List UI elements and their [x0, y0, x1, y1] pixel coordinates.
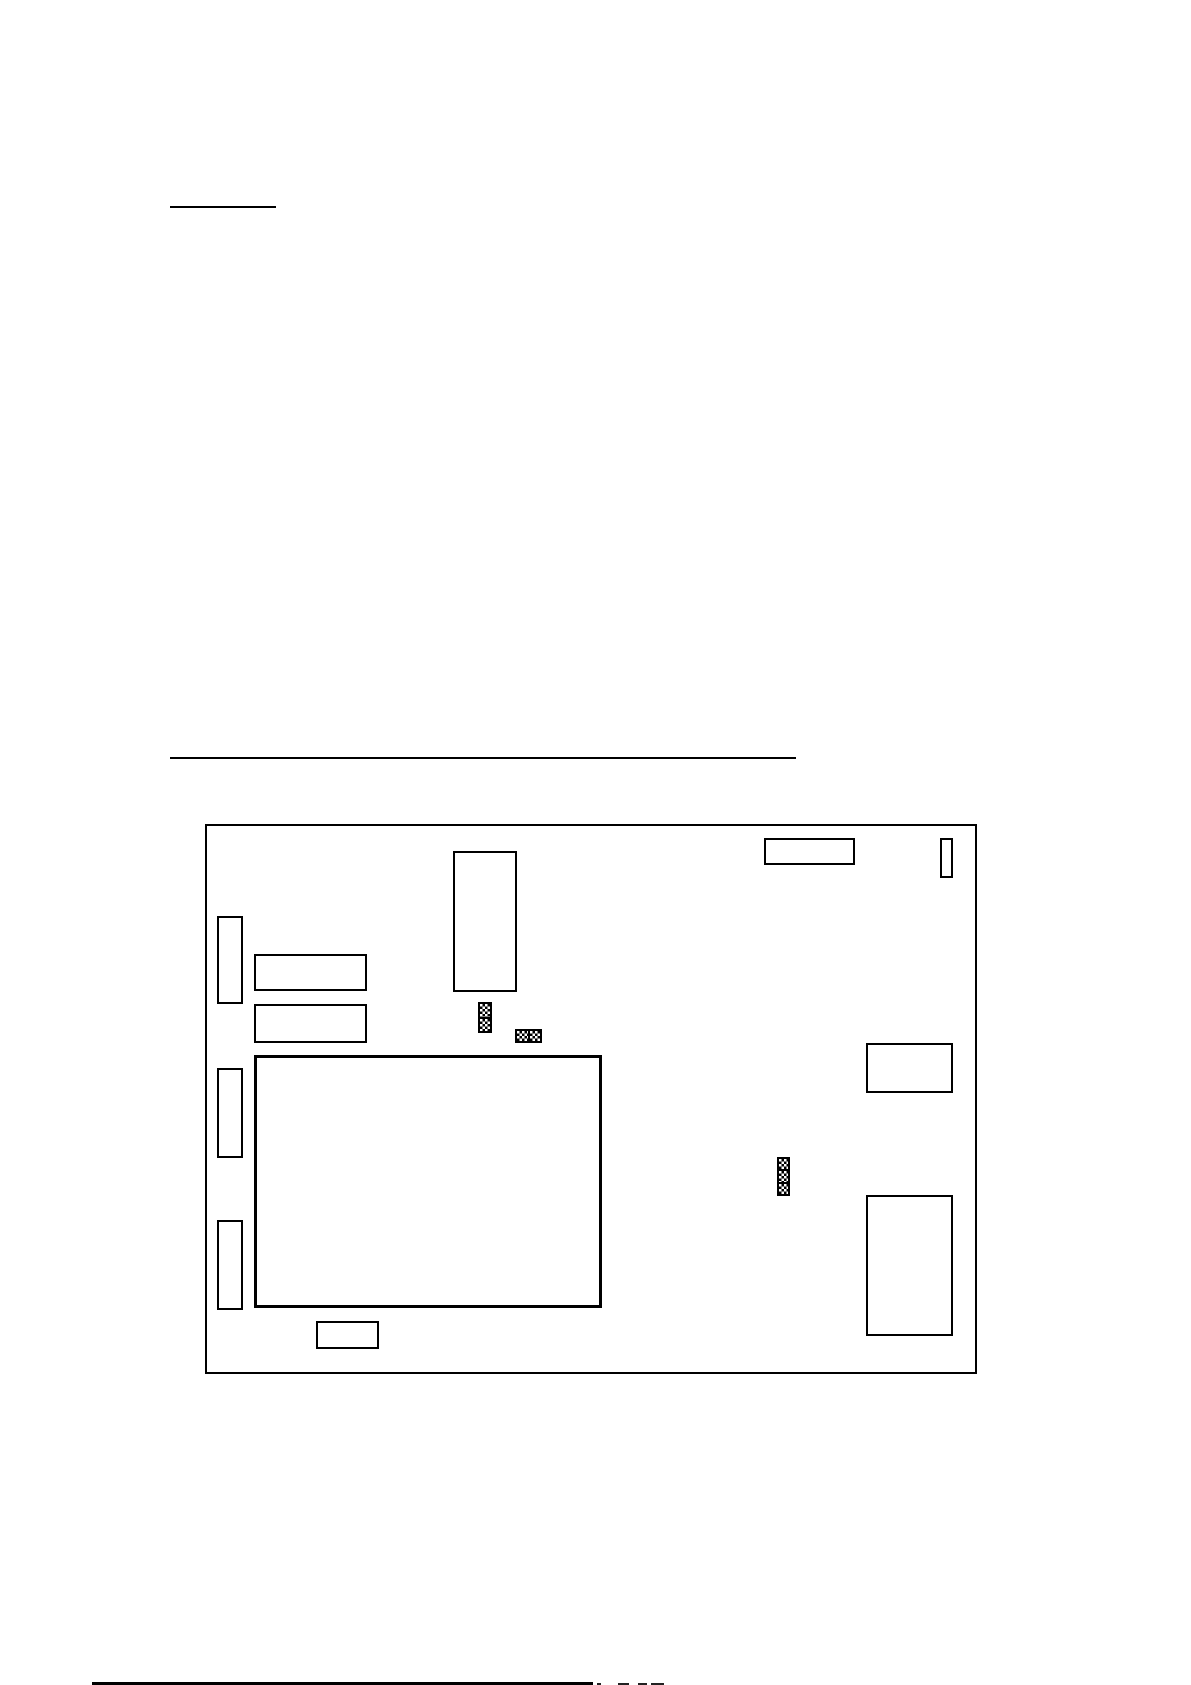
jumper-block-2-cell-1: [517, 1031, 528, 1041]
jumper-block-3-cell-1: [779, 1159, 788, 1169]
section-underline: [170, 757, 796, 759]
module-right-1: [866, 1043, 953, 1093]
connector-top-far-right: [940, 838, 953, 878]
module-left-2: [254, 1004, 367, 1043]
jumper-block-1: [478, 1002, 492, 1033]
jumper-block-3-cell-2: [779, 1171, 788, 1181]
jumper-block-1-cell-1: [480, 1004, 490, 1017]
jumper-block-3-cell-3: [779, 1184, 788, 1194]
connector-top-right: [764, 838, 855, 865]
document-page: [0, 0, 1191, 1685]
heading-underline-top: [170, 206, 276, 208]
jumper-block-1-cell-2: [480, 1019, 490, 1032]
jumper-block-2-cell-2: [530, 1031, 541, 1041]
module-left-1: [254, 954, 367, 991]
ic-large-central: [254, 1055, 602, 1308]
module-right-2: [866, 1195, 953, 1336]
jumper-block-2: [515, 1029, 542, 1043]
connector-left-1: [217, 916, 243, 1004]
connector-left-3: [217, 1220, 243, 1310]
connector-left-2: [217, 1068, 243, 1158]
jumper-block-3: [777, 1157, 790, 1196]
ic-vertical-top-center: [453, 851, 517, 992]
connector-bottom: [316, 1321, 379, 1349]
